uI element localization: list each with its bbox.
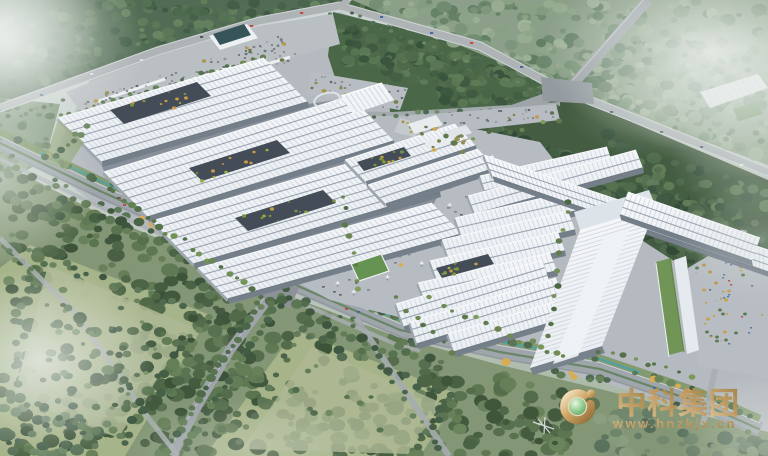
svg-text:www.hnzkjx.cn: www.hnzkjx.cn — [612, 416, 737, 431]
